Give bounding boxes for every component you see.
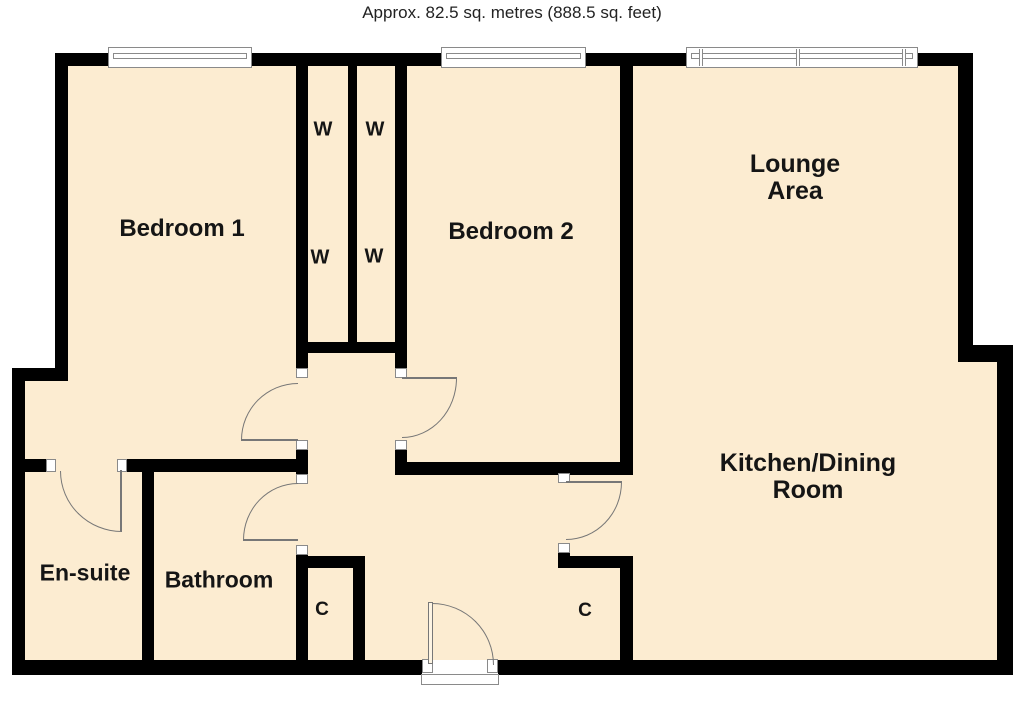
floor-kitchen-extension — [958, 345, 997, 660]
label-kitchen-line1: Kitchen/Dining — [720, 450, 896, 477]
wall-exterior-right-upper — [958, 53, 973, 362]
wall-bedroom2-right — [620, 66, 633, 475]
label-bedroom2: Bedroom 2 — [448, 218, 573, 246]
label-wardrobe-3: W — [311, 247, 330, 270]
wall-bedroom2-left — [395, 66, 407, 368]
window-mullion — [699, 49, 703, 66]
wall-exterior-left-lower — [12, 368, 25, 675]
floor-plan: Approx. 82.5 sq. metres (888.5 sq. feet) — [0, 0, 1024, 702]
label-bathroom: Bathroom — [165, 567, 274, 594]
label-cupboard-2: C — [578, 600, 592, 622]
jamb-kitchen-door-bottom — [558, 543, 570, 553]
jamb-bedroom1-door-bottom — [296, 440, 308, 450]
wall-ensuite-bathroom-top — [127, 459, 296, 472]
label-bedroom1: Bedroom 1 — [119, 215, 244, 243]
jamb-bedroom2-door-bottom — [395, 440, 407, 450]
wall-wardrobe-bottom — [296, 342, 407, 353]
wall-ensuite-top-left — [18, 459, 46, 472]
wall-exterior-bottom-left — [12, 660, 422, 675]
entrance-threshold — [421, 674, 499, 685]
window-mullion — [902, 49, 906, 66]
label-wardrobe-4: W — [365, 246, 384, 269]
window-mullion — [796, 49, 800, 66]
jamb-bathroom-door-bottom — [296, 545, 308, 555]
label-kitchen-line2: Room — [720, 477, 896, 504]
wall-ensuite-bathroom-divider — [142, 472, 154, 660]
wall-west-stub — [296, 450, 308, 474]
floor-upper — [68, 66, 958, 360]
label-cupboard-1: C — [315, 599, 329, 621]
window-glass-line — [446, 53, 581, 59]
wall-exterior-right-lower — [997, 345, 1013, 675]
wall-bedroom1-right — [296, 66, 308, 368]
window-bedroom1 — [108, 47, 252, 68]
window-bedroom2 — [441, 47, 586, 68]
label-ensuite: En-suite — [40, 560, 131, 587]
floor-lower — [68, 360, 958, 660]
label-lounge-line2: Area — [750, 178, 840, 205]
window-glass-line — [691, 53, 913, 59]
wall-exterior-bottom-right — [498, 660, 1013, 675]
wall-bathroom-right — [296, 555, 308, 660]
label-wardrobe-1: W — [314, 119, 333, 142]
plan-area-title: Approx. 82.5 sq. metres (888.5 sq. feet) — [0, 3, 1024, 23]
wall-bedroom2-bottom — [395, 462, 633, 475]
window-glass-line — [113, 53, 247, 59]
label-lounge: Lounge Area — [750, 151, 840, 205]
window-lounge — [686, 47, 918, 68]
wall-cupboard2-right — [620, 556, 633, 660]
wall-cupboard1-right — [353, 556, 365, 660]
wall-wardrobe-divider — [348, 66, 357, 353]
jamb-bedroom1-door-top — [296, 368, 308, 378]
wall-exterior-left-upper — [55, 53, 68, 368]
jamb-ensuite-door-left — [46, 459, 56, 472]
label-kitchen: Kitchen/Dining Room — [720, 450, 896, 504]
floor-left-notch — [25, 381, 68, 660]
label-wardrobe-2: W — [366, 119, 385, 142]
label-lounge-line1: Lounge — [750, 151, 840, 178]
